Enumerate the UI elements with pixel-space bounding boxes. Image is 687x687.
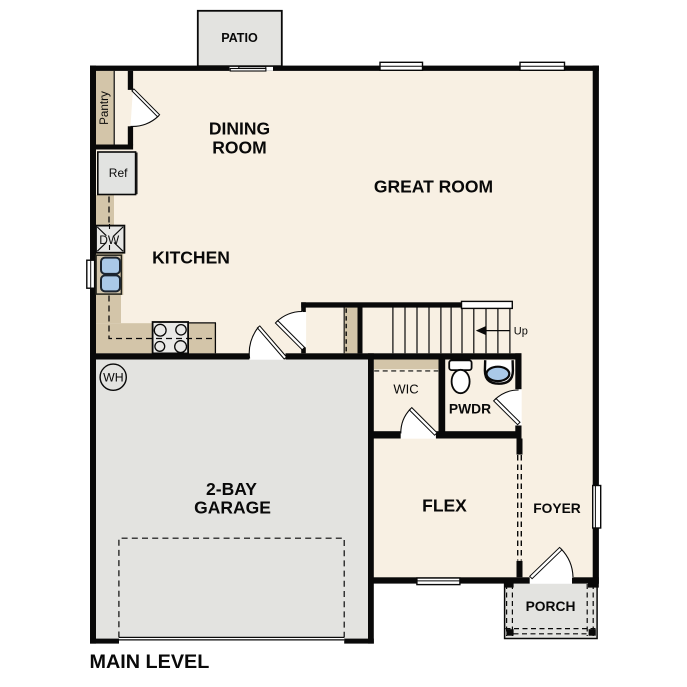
svg-text:GARAGE: GARAGE <box>194 498 271 518</box>
svg-text:2-BAY: 2-BAY <box>206 479 257 499</box>
svg-text:PORCH: PORCH <box>526 599 576 614</box>
svg-text:Up: Up <box>514 325 528 337</box>
svg-text:ROOM: ROOM <box>212 138 266 158</box>
svg-text:GREAT ROOM: GREAT ROOM <box>374 177 493 197</box>
svg-text:PWDR: PWDR <box>449 402 491 417</box>
svg-text:KITCHEN: KITCHEN <box>152 247 230 267</box>
svg-text:DINING: DINING <box>209 119 270 139</box>
svg-text:Ref: Ref <box>109 166 128 180</box>
svg-text:FLEX: FLEX <box>422 495 467 515</box>
svg-text:WIC: WIC <box>393 381 418 396</box>
svg-text:Pantry: Pantry <box>98 91 111 125</box>
svg-text:PATIO: PATIO <box>221 31 258 45</box>
svg-text:DW: DW <box>99 233 120 247</box>
svg-text:MAIN LEVEL: MAIN LEVEL <box>90 651 210 673</box>
svg-text:FOYER: FOYER <box>533 501 581 516</box>
svg-text:WH: WH <box>103 371 124 385</box>
